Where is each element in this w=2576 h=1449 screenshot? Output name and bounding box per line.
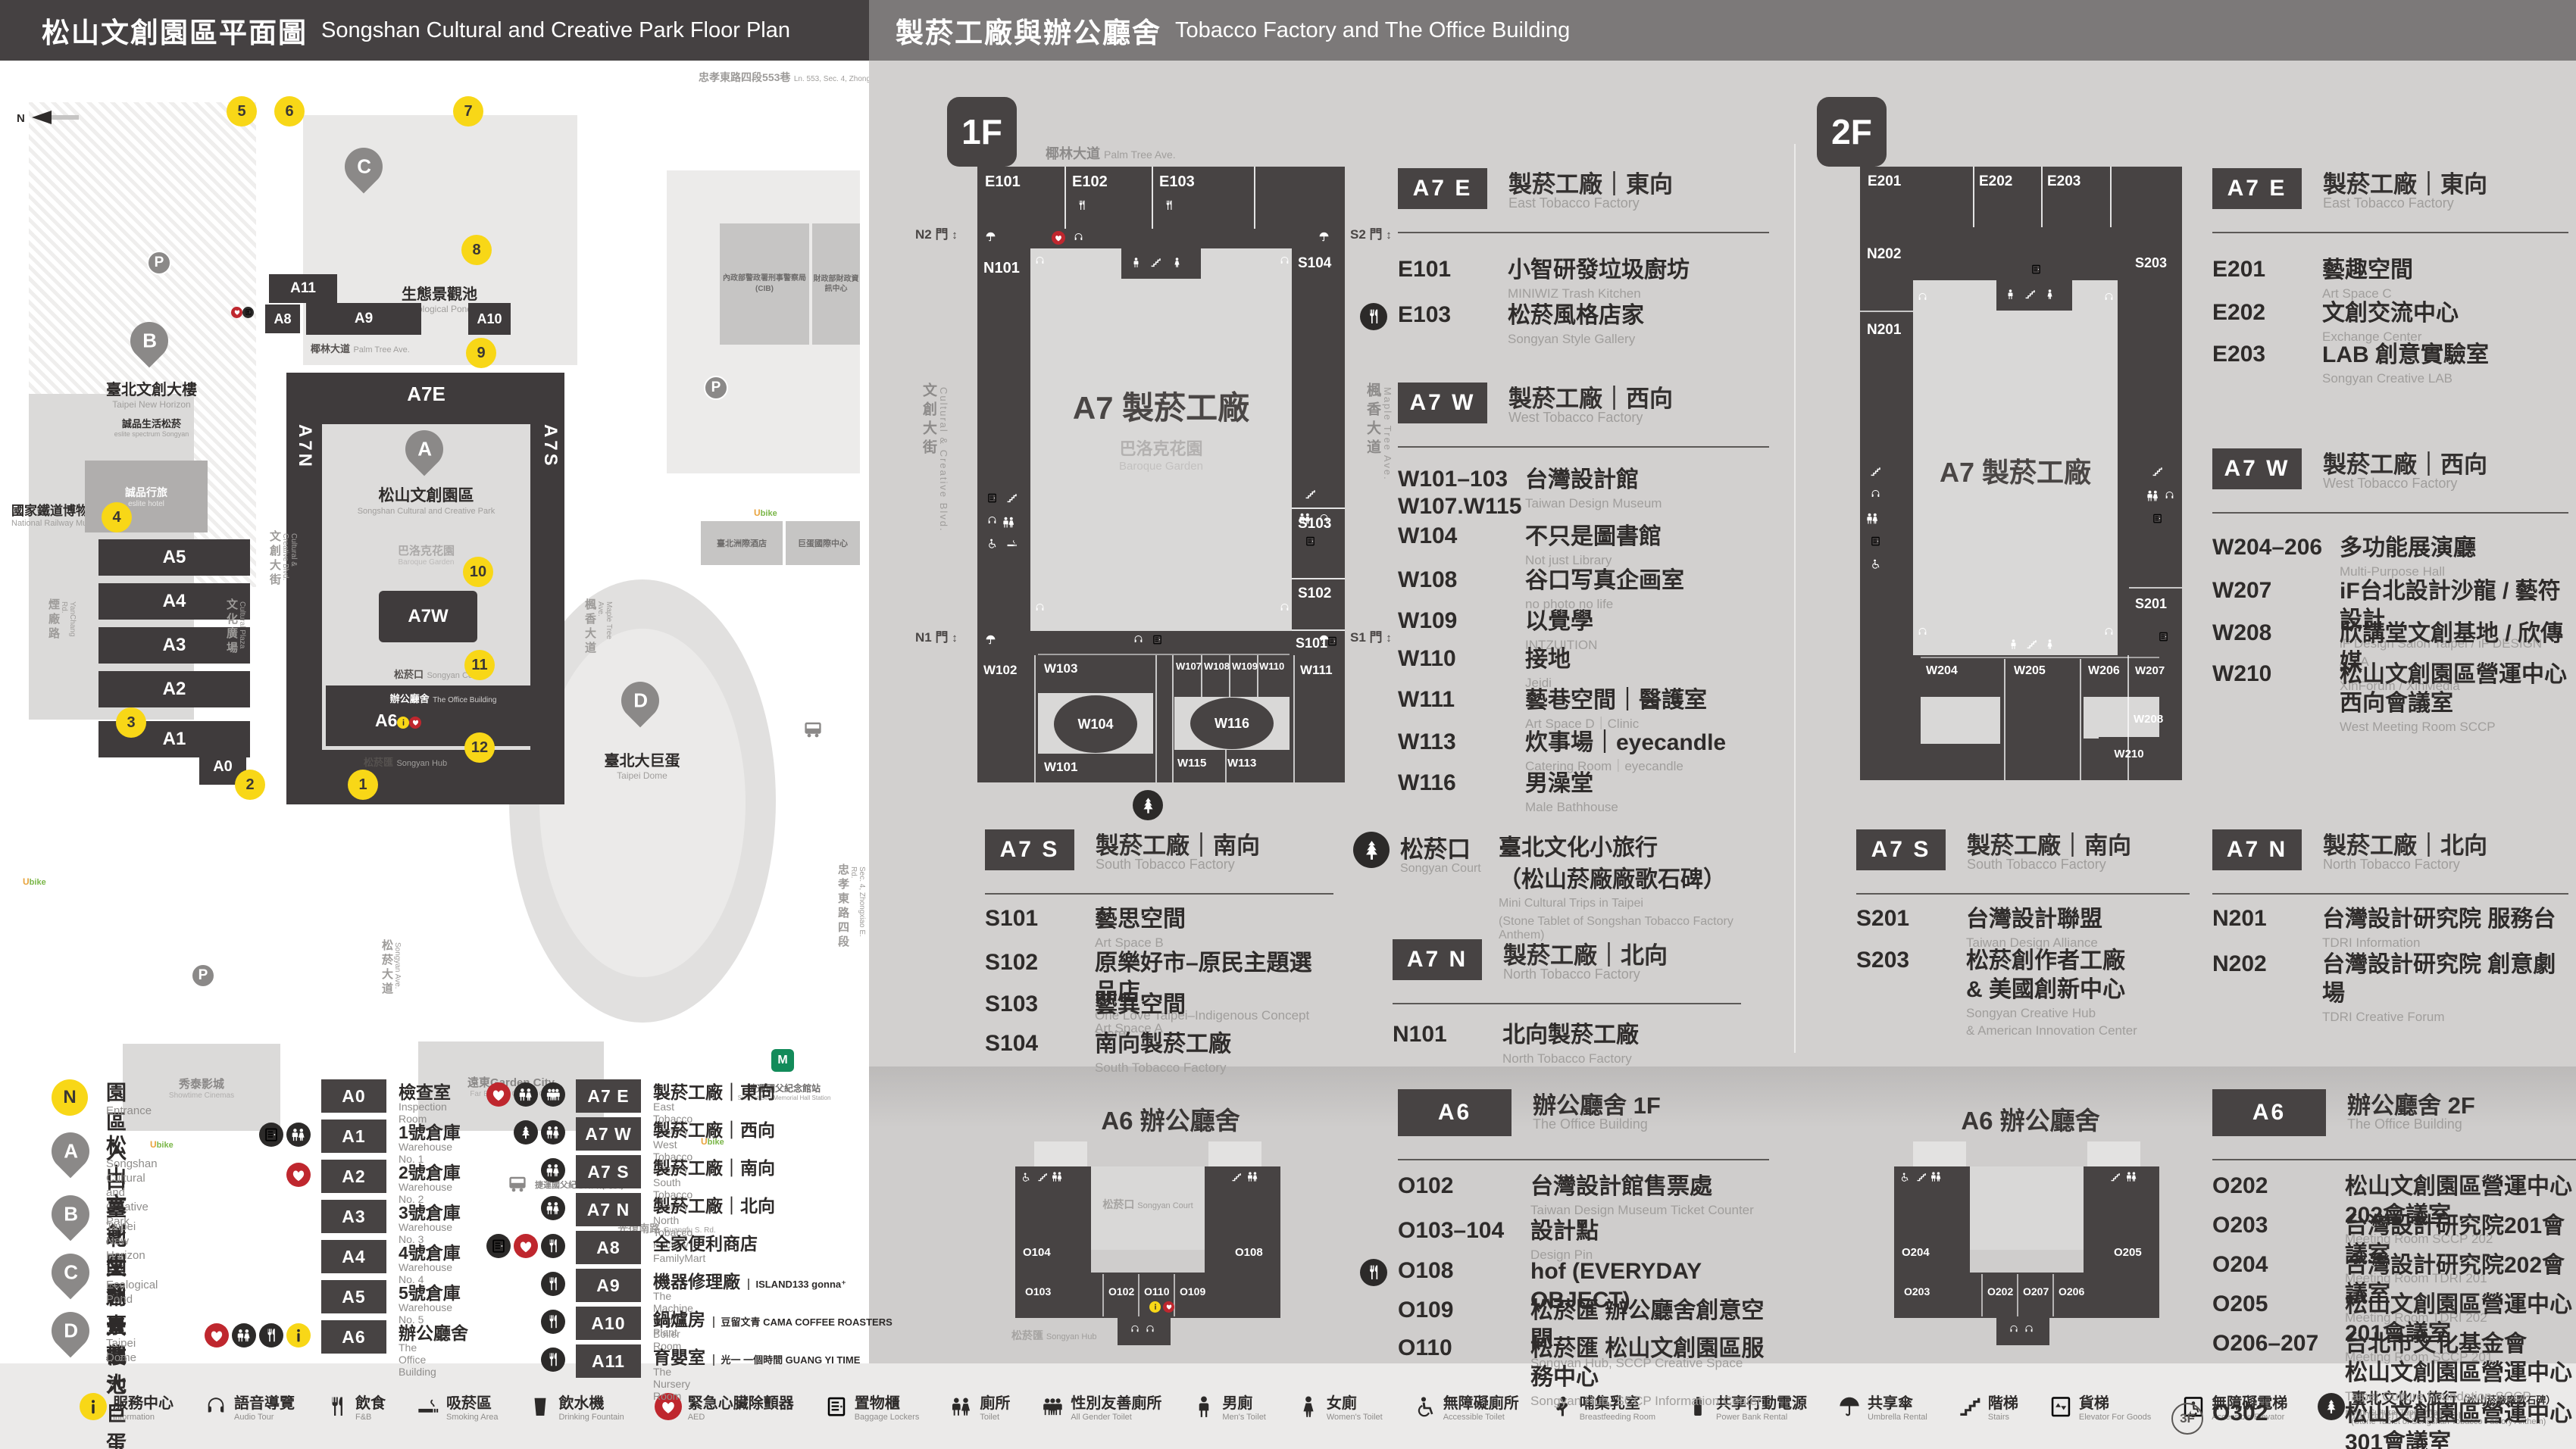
room-label-W102: W102 — [983, 663, 1017, 678]
legend-item-A9-zh: 機器修理廠 ISLAND133 gonna⁺ — [653, 1267, 846, 1293]
entry-code: O203 — [2212, 1212, 2345, 1239]
facility-item-info: 服務中心Information — [80, 1391, 174, 1422]
plan-icon — [1246, 1170, 1259, 1183]
aed-icon — [205, 1323, 229, 1348]
plan2-sep — [1921, 657, 2159, 658]
toilet-icon — [236, 1327, 252, 1344]
directory-divider — [2212, 512, 2568, 514]
directory-title-en: The Office Building — [1533, 1116, 1648, 1132]
entry-code: S102 — [985, 949, 1095, 976]
dining-icon — [541, 1310, 565, 1334]
entry-name: 台灣設計研究院 創意劇場TDRI Creative Forum — [2322, 951, 2568, 1026]
entry-code: O204 — [2212, 1251, 2345, 1279]
room-label-O103: O103 — [1025, 1285, 1051, 1298]
person-icon — [2008, 639, 2019, 650]
plan-icon — [2024, 1324, 2034, 1335]
directory-divider — [1856, 893, 2190, 895]
room-label-O204: O204 — [1902, 1246, 1930, 1259]
plan-icon — [1002, 515, 1016, 529]
toilet-icon — [1865, 511, 1880, 526]
legend-item-A9-chip: A9 — [576, 1269, 641, 1302]
directory-title-en: North Tobacco Factory — [1503, 967, 1640, 982]
entry-name: 松菸匯 松山文創園區服務中心Songyan Hub, SCCP Informat… — [1530, 1335, 1769, 1410]
plan-icon — [1150, 257, 1161, 268]
wheelchair-icon — [986, 538, 998, 549]
headphone-icon — [204, 1394, 228, 1419]
legend-icon-toilet — [514, 1082, 538, 1107]
entry-code: O109 — [1398, 1297, 1530, 1324]
legend-icon-dining — [259, 1323, 283, 1348]
aed-icon — [1163, 1301, 1174, 1313]
page-title-en: Songshan Cultural and Creative Park Floo… — [321, 18, 790, 43]
entrance-number-6: 6 — [274, 96, 305, 126]
room-label-W113: W113 — [1227, 757, 1256, 770]
entry-name: 台灣設計館Taiwan Design Museum — [1525, 466, 1769, 513]
directory-chip-o2f: A6 — [2212, 1089, 2326, 1136]
umbrella-icon — [985, 231, 996, 242]
directory-title-zh: 辦公廳舍 1F — [1533, 1086, 1661, 1120]
plan-icon — [1006, 492, 1018, 504]
room-label-E102: E102 — [1072, 173, 1108, 191]
allgender_bare-icon — [1040, 1394, 1064, 1419]
plan-icon — [1930, 1170, 1943, 1183]
entry-code: O102 — [1398, 1173, 1530, 1200]
room-label-W207: W207 — [2135, 664, 2165, 677]
entry-floor-prefix: 3F — [2171, 1403, 2203, 1435]
plan-icon — [2152, 513, 2163, 524]
block-A11: A11 — [269, 274, 337, 303]
umbrella-icon — [1318, 634, 1330, 645]
map-pin-icon: D — [44, 1304, 98, 1358]
plan-icon — [1051, 1170, 1064, 1183]
room-label-W205: W205 — [2014, 664, 2046, 678]
toilet-icon — [290, 1126, 307, 1143]
plan2-sep — [2110, 167, 2112, 227]
room-label-O102: O102 — [1108, 1285, 1134, 1298]
wheelchair-icon — [1413, 1394, 1437, 1419]
ubike-mark: Ubike — [754, 506, 777, 520]
plan-icon — [1052, 231, 1065, 246]
entry-name: 松菸創作者工廠& 美國創新中心Songyan Creative Hub& Ame… — [1966, 947, 2190, 1039]
stairs-icon — [1958, 1394, 1982, 1419]
dining-icon — [1360, 303, 1387, 330]
office-sep — [2017, 1274, 2018, 1316]
room-label-W204: W204 — [1926, 664, 1958, 678]
legend-pin-zh-D: 臺北大巨蛋 — [106, 1309, 127, 1449]
tree-icon — [514, 1120, 538, 1145]
locker-icon — [1152, 634, 1163, 645]
legend-icon-dining — [541, 1234, 565, 1258]
plan-icon — [2125, 1170, 2138, 1183]
dining-icon — [1163, 199, 1175, 211]
dining-icon — [545, 1351, 561, 1368]
legend-pin-en-C: Ecological Pond — [106, 1278, 158, 1307]
plan-icon — [1318, 513, 1330, 524]
dining-icon — [541, 1348, 565, 1372]
toilet-icon — [1051, 1170, 1064, 1183]
plan-icon — [2008, 639, 2019, 650]
directory-title-en: South Tobacco Factory — [1967, 857, 2106, 873]
dining-icon — [325, 1394, 349, 1419]
legend-icon-toilet — [541, 1158, 565, 1182]
directory-title-en: East Tobacco Factory — [1508, 195, 1640, 211]
map-pin-D: D — [621, 682, 659, 720]
headphone-icon — [1318, 513, 1330, 524]
entrance-number-icon: 11 — [464, 650, 495, 680]
entry-code: W113 — [1398, 729, 1525, 756]
entrance-number-7: 7 — [453, 96, 483, 126]
aedheart-icon — [517, 1238, 534, 1254]
directory-title-en: East Tobacco Factory — [2323, 195, 2454, 211]
headphone-icon — [1130, 1324, 1140, 1335]
stairs-icon — [1916, 1172, 1927, 1182]
legend-item-A6-zh: 辦公廳舍 — [399, 1319, 468, 1344]
room-label-O109: O109 — [1180, 1285, 1205, 1298]
building-dome-center: 巨蛋國際中心 — [786, 521, 860, 565]
locker-icon — [486, 1234, 511, 1258]
aed-icon — [486, 1082, 511, 1107]
entrance-number-2: 2 — [235, 770, 265, 800]
road-label-3: 松菸大道Songyan Ave. — [379, 939, 395, 997]
toilet-icon — [2125, 1170, 2138, 1183]
entry-code: S101 — [985, 905, 1095, 932]
map-pin-C: C — [345, 148, 383, 186]
plan1-sep — [1292, 507, 1345, 509]
plan-icon — [1870, 466, 1881, 477]
facility-item-dining_bare: 飲食F&B — [325, 1391, 386, 1422]
room-oval-W104: W104 — [1054, 695, 1137, 753]
directory-chip-f1-a7w: A7 W — [1398, 383, 1487, 423]
plan2-sep — [2127, 655, 2129, 780]
room-icon — [1149, 1301, 1161, 1314]
songyan-court-zh: 松菸口 — [1400, 830, 1471, 864]
legend-pin-en-N: Entrance — [106, 1104, 152, 1118]
legend-item-A4-zh: 4號倉庫 — [399, 1238, 461, 1264]
entry-code: W110 — [1398, 645, 1525, 673]
court-en-2: (Stone Tablet of Songshan Tobacco Factor… — [1499, 915, 1777, 942]
plan-icon — [1145, 1324, 1155, 1335]
aed-icon — [409, 717, 421, 729]
room-label-W115: W115 — [1177, 757, 1206, 770]
newhorizon-label: 臺北文創大樓Taipei New Horizon誠品生活松菸eslite spe… — [72, 377, 231, 438]
person-icon — [2005, 289, 2016, 300]
entry-code: E101 — [1398, 256, 1508, 283]
room-label-W103: W103 — [1044, 661, 1077, 676]
headphone-icon — [1279, 602, 1290, 614]
map-pin-icon: C — [44, 1246, 98, 1300]
cup-icon — [528, 1394, 552, 1419]
bus-stop-right — [802, 718, 824, 741]
ubike-logo: U — [150, 1139, 157, 1150]
ubike-logo: U — [754, 507, 761, 518]
svg-text:N: N — [17, 112, 25, 125]
room-label-S201: S201 — [2135, 596, 2167, 612]
plan-icon — [2005, 289, 2016, 300]
plan1-sep — [1292, 629, 1345, 631]
headphone-icon — [1917, 626, 1928, 638]
legend-icon-info — [286, 1323, 311, 1348]
legend-pin-B: B — [52, 1195, 89, 1233]
entry-code: O110 — [1398, 1335, 1530, 1362]
entrance-number-1: 1 — [348, 770, 378, 800]
directory-divider — [2212, 232, 2568, 233]
plan2-sep — [1860, 311, 1913, 312]
legend-item-A6-en: The Office Building — [399, 1341, 436, 1378]
entrance-number-icon: 1 — [348, 770, 378, 800]
plan-icon — [985, 634, 996, 645]
directory-divider — [1398, 1159, 1769, 1160]
man-icon — [1192, 1394, 1216, 1419]
map-pin-icon: D — [614, 674, 667, 728]
songyan-court-map-icon — [1133, 790, 1163, 820]
toilet-icon — [1930, 1170, 1943, 1183]
office-plan-title: A6 辦公廳舍 — [1860, 1101, 2201, 1137]
entry-name: 台灣設計館售票處Taiwan Design Museum Ticket Coun… — [1530, 1173, 1769, 1219]
directory-title-en: North Tobacco Factory — [2323, 857, 2460, 873]
ubike-mark: Ubike — [23, 875, 46, 888]
tree-icon — [1133, 790, 1163, 820]
toilet-icon — [545, 1200, 561, 1216]
plan-icon — [2164, 490, 2175, 501]
floor-badge-2f: 2F — [1817, 97, 1887, 167]
office-stem — [1118, 1318, 1171, 1345]
entry-icon — [1360, 1259, 1387, 1286]
entry-name: 炊事場｜eyecandleCatering Room｜eyecandle — [1525, 729, 1769, 776]
block-A10: A10 — [468, 303, 511, 335]
legend-icon-toilet — [541, 1120, 565, 1145]
facility-item-toilet_bare: 廁所Toilet — [949, 1391, 1010, 1422]
directory-chip-f2-a7e: A7 E — [2212, 168, 2302, 209]
allgender-icon — [1040, 1394, 1064, 1419]
plan1-sep — [1201, 655, 1202, 697]
toilet-icon — [949, 1394, 974, 1419]
room-label-E101: E101 — [985, 173, 1021, 191]
person-icon — [1130, 257, 1142, 268]
plan-icon — [1171, 257, 1183, 268]
plan-icon — [2024, 289, 2036, 300]
aedheart-icon — [1165, 1303, 1173, 1310]
entry-name: 男澡堂Male Bathhouse — [1525, 770, 1769, 817]
legend-item-A5-chip: A5 — [321, 1280, 386, 1313]
legend-pin-N: N — [52, 1079, 88, 1116]
stairs-icon — [1305, 489, 1316, 500]
room-label-W110: W110 — [1259, 660, 1284, 672]
entry-code: O206–207 — [2212, 1330, 2345, 1357]
plan2-sep — [2041, 167, 2043, 227]
room-label-N202: N202 — [1867, 246, 1901, 263]
directory-chip-f2-a7n: A7 N — [2212, 829, 2302, 870]
office-sep — [1138, 1274, 1140, 1316]
entrance-number-10: 10 — [463, 557, 493, 587]
room-label-O206: O206 — [2059, 1285, 2084, 1298]
facility-item-locker: 置物櫃Baggage Lockers — [824, 1391, 920, 1422]
room-label-O203: O203 — [1904, 1285, 1930, 1298]
legend-item-A7S-zh: 製菸工廠｜南向 — [653, 1154, 775, 1179]
plan-icon — [986, 492, 998, 504]
parking-icon: P — [704, 376, 728, 400]
entrance-number-8: 8 — [461, 235, 492, 265]
plan-icon — [1305, 536, 1316, 547]
directory-divider — [2212, 1159, 2576, 1160]
facility-item-headphone: 語音導覽Audio Tour — [204, 1391, 295, 1422]
plan-icon — [2026, 639, 2037, 650]
entry-code: N101 — [1393, 1021, 1502, 1048]
block-label-A7E: A7E — [322, 383, 530, 406]
aed-icon — [231, 307, 242, 318]
street-right: 楓香大道Maple Tree Ave. — [1362, 383, 1383, 632]
locker-icon — [986, 492, 998, 504]
allgender-icon — [545, 1086, 561, 1103]
headphone-icon — [1133, 634, 1144, 645]
plan-icon — [2103, 626, 2115, 638]
dining-icon — [1360, 1259, 1387, 1286]
room-icon — [1076, 199, 1088, 211]
plan1-sep — [1172, 655, 1174, 782]
toilet-icon — [541, 1158, 565, 1182]
map-pin-icon: A — [398, 423, 452, 476]
office-stem — [1996, 1318, 2049, 1345]
panel-divider — [1794, 144, 1796, 1053]
legend-pin-C: C — [52, 1254, 89, 1291]
facility-item-woman: 女廁Women's Toilet — [1296, 1391, 1383, 1422]
room-label-E103: E103 — [1159, 173, 1195, 191]
legend-icon-toilet — [541, 1196, 565, 1220]
aedheart-icon — [233, 308, 241, 316]
entry-name: 不只是圖書館Not just Library — [1525, 523, 1769, 570]
legend-item-A2-zh: 2號倉庫 — [399, 1158, 461, 1184]
plan-icon — [1037, 1172, 1048, 1182]
office-building-plan-1f: A6 辦公廳舍松菸口 Songyan CourtO104O108O103O102… — [981, 1095, 1360, 1356]
entrance-number-icon: 2 — [235, 770, 265, 800]
room-oval-W116: W116 — [1190, 698, 1274, 749]
stairs-icon — [2110, 1172, 2121, 1182]
plan-icon — [2146, 489, 2160, 503]
road-label-0: 文化廣場Cultural Plaza — [224, 598, 239, 656]
palm-ave-label: 椰林大道 Palm Tree Ave. — [311, 341, 410, 356]
entry-code: W207 — [2212, 577, 2340, 604]
legend-item-A11-en: The Nursery Room — [653, 1366, 690, 1402]
plan1-center-label: A7 製菸工廠 — [1030, 383, 1292, 429]
entry-name: 台灣設計研究院 服務台TDRI Information — [2322, 905, 2568, 952]
dining-icon — [1365, 1263, 1383, 1282]
headphone-icon — [1034, 602, 1046, 614]
room-icon — [1163, 199, 1175, 211]
info-icon — [80, 1393, 107, 1420]
plan-icon — [1006, 538, 1018, 549]
info-icon — [397, 717, 409, 729]
plan1-sep — [1225, 750, 1227, 782]
legend-icon-dining — [541, 1272, 565, 1296]
dining-icon — [541, 1272, 565, 1296]
room-label-E203: E203 — [2047, 173, 2080, 190]
woman-icon — [1296, 1394, 1321, 1419]
entrance-number-icon: 6 — [274, 96, 305, 126]
ubike-mark: Ubike — [150, 1138, 174, 1151]
locker-icon — [490, 1238, 507, 1254]
plan-icon — [2044, 289, 2055, 300]
room-label-W111: W111 — [1300, 663, 1333, 678]
office-sep — [1981, 1274, 1983, 1316]
tree-icon — [1353, 832, 1390, 868]
directory-title-zh: 製菸工廠｜南向 — [1096, 826, 1260, 860]
directory-title-zh: 製菸工廠｜西向 — [2323, 445, 2487, 479]
dining-icon — [545, 1238, 561, 1254]
umbrella-icon — [1318, 231, 1330, 242]
facility-item-elevator: 貨梯Elevator For Goods — [2049, 1391, 2151, 1422]
headphone-icon — [2103, 292, 2115, 303]
entry-code: O205 — [2212, 1291, 2345, 1318]
stairs-icon — [1870, 466, 1881, 477]
room-icon — [1163, 1301, 1174, 1314]
legend-item-A8-chip: A8 — [576, 1231, 641, 1264]
plan-icon — [2030, 264, 2042, 275]
room-label-W101: W101 — [1044, 760, 1077, 775]
entry-name: 藝巷空間｜醫護室Art Space D｜Clinic — [1525, 686, 1769, 733]
block-A6-code: A6 — [375, 710, 421, 731]
toilet-icon — [1002, 515, 1016, 529]
room-label-E201: E201 — [1868, 173, 1901, 190]
facility-item-smoking: 吸菸區Smoking Area — [416, 1391, 498, 1422]
umbrella-icon — [1837, 1394, 1862, 1419]
facility-item-umbrella: 共享傘Umbrella Rental — [1837, 1391, 1927, 1422]
cup-icon — [528, 1394, 552, 1419]
directory-chip-f2-a7s: A7 S — [1856, 829, 1946, 870]
map-pin-icon: A — [44, 1125, 98, 1179]
building-fia: 財政部財政資訊中心 — [812, 223, 860, 345]
headphone-icon — [2024, 1324, 2034, 1335]
headphone-icon — [2103, 626, 2115, 638]
smoking-icon — [416, 1394, 440, 1419]
entry-name: 接地Jeidi — [1525, 645, 1769, 692]
entry-code: W204–206 — [2212, 534, 2340, 561]
block-A7W: A7W — [379, 591, 477, 642]
info-icon — [84, 1397, 102, 1416]
office-sep — [2052, 1274, 2054, 1316]
entry-name: 松菸風格店家Songyan Style Gallery — [1508, 301, 1769, 348]
map-pin-B: B — [130, 322, 168, 360]
toilet-icon — [514, 1082, 538, 1107]
facility-item-man: 男廁Men's Toilet — [1192, 1391, 1266, 1422]
legend-item-A10-zh: 鍋爐房 豆留文青 CAMA COFFEE ROASTERS — [653, 1305, 893, 1331]
locker-icon — [824, 1394, 849, 1419]
room-label-O205: O205 — [2114, 1246, 2142, 1259]
plan2-center-label: A7 製菸工廠 — [1913, 451, 2118, 490]
legend-icon-aed — [514, 1234, 538, 1258]
plan-icon — [1279, 255, 1290, 267]
aedheart-icon — [411, 718, 420, 726]
entry-code: E203 — [2212, 341, 2322, 368]
entry-name: 松山文創園區營運中心西向會議室West Meeting Room SCCP — [2340, 660, 2568, 736]
entrance-legend-icon: N — [52, 1079, 88, 1116]
legend-icon-dining — [541, 1348, 565, 1372]
songyan-court-en: Songyan Court — [1400, 862, 1481, 876]
stairs-icon — [1231, 1172, 1242, 1182]
plan1-sep — [1152, 167, 1153, 229]
directory-title-en: The Office Building — [2347, 1116, 2462, 1132]
legend-item-A2-chip: A2 — [321, 1160, 386, 1193]
facility-item-allgender_bare: 性別友善廁所All Gender Toilet — [1040, 1391, 1161, 1422]
info-icon — [80, 1393, 107, 1420]
office-sep — [1102, 1274, 1104, 1316]
plan2-sep — [2080, 659, 2081, 780]
block-A9: A9 — [306, 303, 421, 335]
tobacco-factory-plan-1f: 椰林大道 Palm Tree Ave.A7 製菸工廠巴洛克花園Baroque G… — [962, 163, 1356, 814]
tree-icon — [517, 1124, 534, 1141]
court-title-1: 臺北文化小旅行 — [1499, 829, 1658, 862]
office-plan-title: A6 辦公廳舍 — [981, 1101, 1360, 1137]
legend-item-A0-chip: A0 — [321, 1079, 386, 1113]
block-A5: A5 — [98, 539, 250, 576]
